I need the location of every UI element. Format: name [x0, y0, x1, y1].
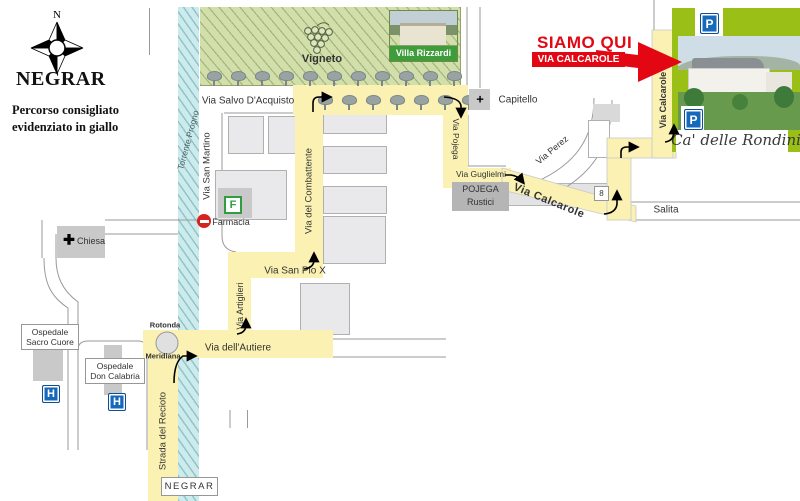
negrar-route-map: Vigneto Villa Rizzardi P P Ca' delle Ron…: [0, 0, 800, 501]
route-direction-arrows: [0, 0, 800, 501]
